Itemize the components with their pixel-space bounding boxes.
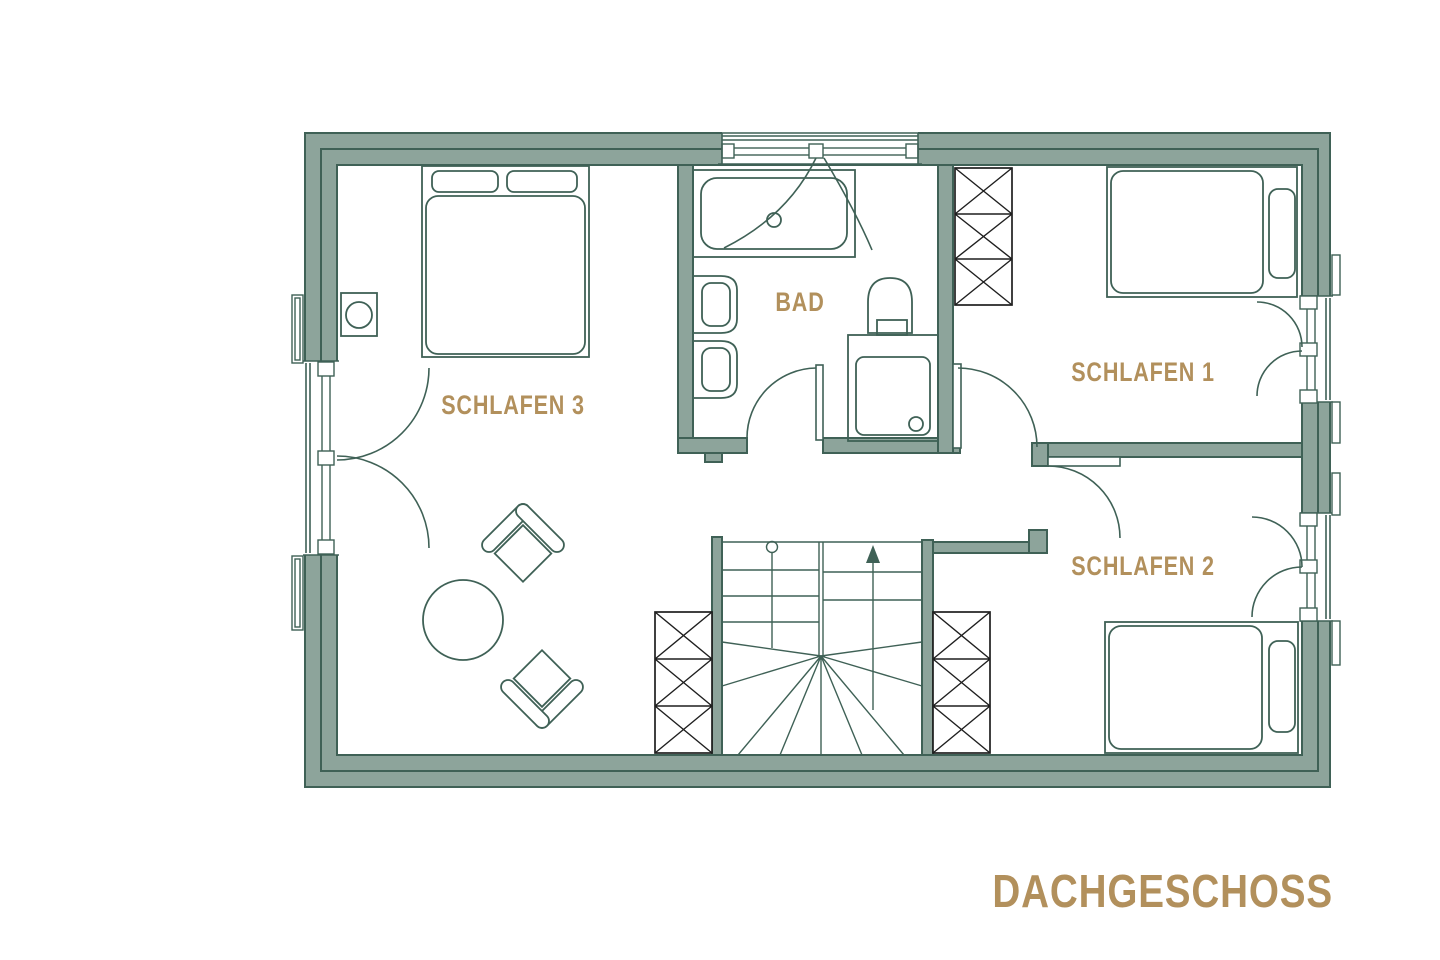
window-right-schlafen1	[1257, 296, 1333, 403]
floor-title-text: DACHGESCHOSS	[992, 866, 1333, 917]
room-label-bad: BAD	[775, 288, 824, 318]
staircase	[722, 542, 922, 756]
armchair-1	[479, 501, 567, 589]
door-schlafen2	[1048, 457, 1120, 538]
washbasin-1	[693, 276, 737, 333]
stair-direction-arrow	[866, 545, 880, 563]
single-bed-schlafen2	[1105, 622, 1298, 753]
room-label-schlafen1: SCHLAFEN 1	[1071, 358, 1215, 388]
double-bed	[422, 166, 589, 357]
floor-plan-canvas: SCHLAFEN 3 BAD SCHLAFEN 1 SCHLAFEN 2 DAC…	[0, 0, 1440, 960]
room-label-schlafen3: SCHLAFEN 3	[441, 391, 585, 421]
wall-washbasin	[341, 293, 377, 336]
bathtub	[693, 170, 855, 257]
roof-window	[716, 131, 924, 250]
room-label-schlafen2: SCHLAFEN 2	[1071, 552, 1215, 582]
side-table	[423, 580, 503, 660]
toilet	[868, 278, 912, 335]
wardrobe-schlafen3	[655, 612, 712, 753]
floor-title: DACHGESCHOSS	[992, 866, 1333, 917]
door-bad	[747, 365, 823, 440]
door-schlafen1	[953, 364, 1037, 448]
washbasin-2	[693, 341, 737, 398]
shower	[848, 335, 938, 441]
wardrobe-schlafen2	[933, 612, 990, 753]
room-label-schlafen2-text: SCHLAFEN 2	[1071, 552, 1215, 582]
room-label-schlafen3-text: SCHLAFEN 3	[441, 391, 585, 421]
single-bed-schlafen1	[1107, 167, 1297, 297]
room-label-bad-text: BAD	[775, 288, 824, 318]
floor-plan-svg: SCHLAFEN 3 BAD SCHLAFEN 1 SCHLAFEN 2 DAC…	[0, 0, 1440, 960]
room-label-schlafen1-text: SCHLAFEN 1	[1071, 358, 1215, 388]
wardrobe-schlafen1	[955, 168, 1012, 305]
window-left	[303, 361, 429, 555]
armchair-2	[498, 643, 586, 731]
window-right-schlafen2	[1252, 513, 1333, 621]
